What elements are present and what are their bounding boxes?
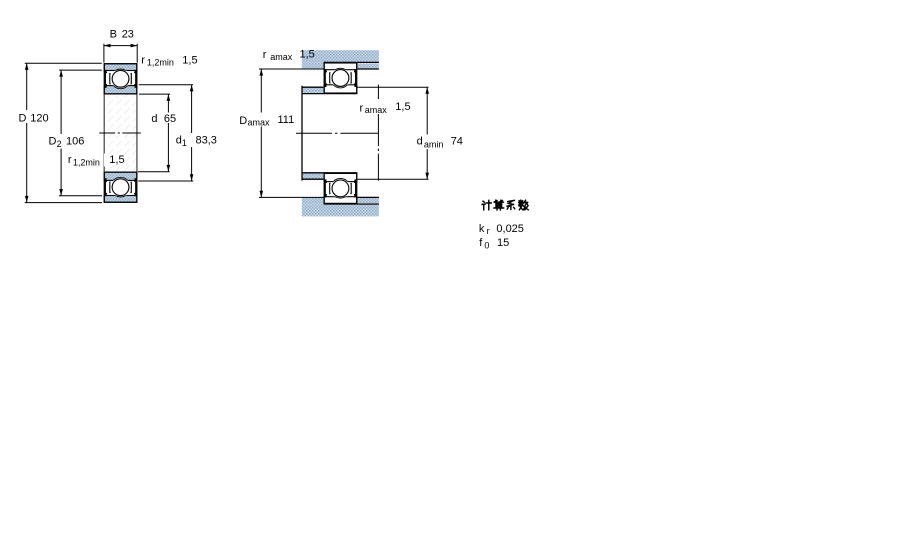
svg-text:amin: amin — [424, 140, 444, 150]
svg-text:r: r — [487, 226, 490, 236]
svg-text:1,5: 1,5 — [182, 55, 197, 67]
svg-text:amax: amax — [270, 52, 293, 62]
svg-text:23: 23 — [122, 29, 134, 41]
svg-text:120: 120 — [30, 112, 48, 124]
svg-text:r: r — [141, 55, 145, 67]
svg-text:2: 2 — [57, 139, 62, 149]
svg-text:106: 106 — [66, 135, 84, 147]
svg-text:r: r — [68, 154, 72, 166]
svg-text:d: d — [151, 113, 157, 125]
svg-text:amax: amax — [248, 117, 271, 127]
svg-text:k: k — [479, 223, 485, 235]
svg-text:74: 74 — [451, 136, 463, 148]
svg-text:B: B — [110, 29, 117, 41]
svg-text:D: D — [49, 135, 57, 147]
svg-text:1,5: 1,5 — [395, 101, 410, 113]
svg-text:83,3: 83,3 — [196, 135, 217, 147]
svg-text:amax: amax — [365, 105, 388, 115]
svg-text:0,025: 0,025 — [496, 223, 524, 235]
svg-text:1: 1 — [182, 138, 187, 148]
svg-text:1,2min: 1,2min — [147, 58, 174, 68]
svg-text:111: 111 — [278, 114, 295, 126]
svg-text:D: D — [19, 112, 27, 124]
svg-text:15: 15 — [497, 237, 509, 249]
svg-text:f: f — [479, 237, 483, 249]
svg-text:d: d — [417, 136, 423, 148]
svg-text:65: 65 — [164, 113, 176, 125]
svg-text:0: 0 — [484, 241, 489, 251]
svg-text:1,2min: 1,2min — [73, 158, 100, 168]
svg-text:r: r — [360, 102, 364, 114]
svg-text:1,5: 1,5 — [300, 49, 315, 61]
svg-text:D: D — [239, 115, 247, 127]
svg-text:r: r — [263, 49, 267, 61]
svg-text:1,5: 1,5 — [109, 154, 124, 166]
